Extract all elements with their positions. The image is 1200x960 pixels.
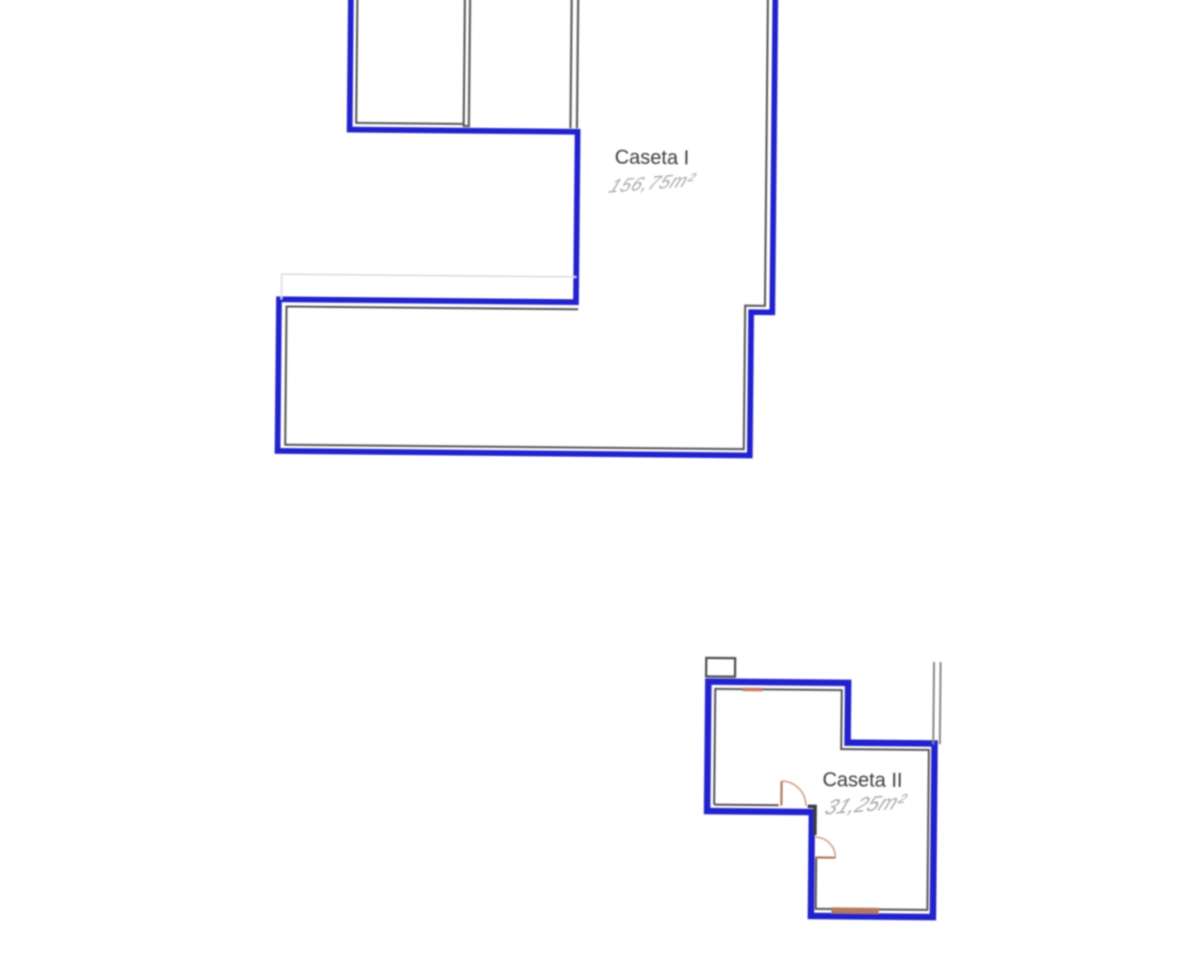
svg-text:156,75m²: 156,75m² <box>605 170 699 198</box>
svg-text:Caseta I: Caseta I <box>615 147 690 170</box>
svg-text:31,25m²: 31,25m² <box>821 789 910 819</box>
svg-text:Caseta II: Caseta II <box>822 769 902 792</box>
